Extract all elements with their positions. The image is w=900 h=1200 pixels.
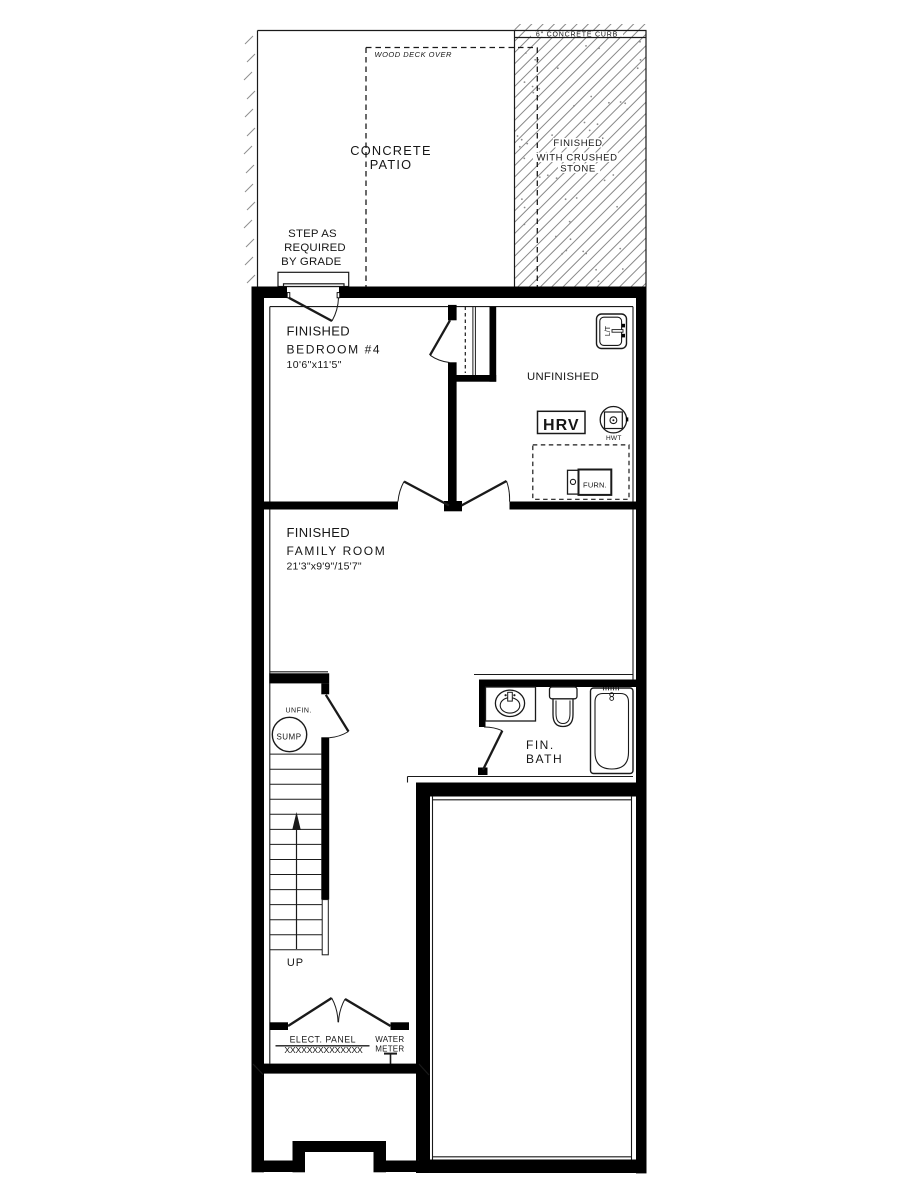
svg-text:STEP AS: STEP AS [288,228,337,240]
svg-text:REQUIRED: REQUIRED [284,242,346,254]
svg-text:FAMILY ROOM: FAMILY ROOM [287,544,387,558]
svg-text:PATIO: PATIO [370,157,413,172]
svg-text:SUMP: SUMP [276,732,301,741]
svg-text:FINISHED: FINISHED [287,525,350,540]
svg-text:BY GRADE: BY GRADE [281,256,341,268]
svg-text:UNFIN.: UNFIN. [286,708,312,715]
svg-text:FURN.: FURN. [583,481,607,490]
svg-text:UP: UP [287,957,304,969]
svg-text:FINISHED: FINISHED [553,138,602,149]
svg-text:WITH CRUSHED: WITH CRUSHED [536,153,617,164]
svg-text:UNFINISHED: UNFINISHED [527,371,599,383]
svg-text:L/T: L/T [605,325,612,336]
svg-text:METER: METER [375,1045,404,1054]
svg-text:CONCRETE: CONCRETE [350,143,431,158]
svg-text:HWT: HWT [606,435,622,442]
svg-text:FINISHED: FINISHED [287,324,350,339]
svg-text:WATER: WATER [375,1035,404,1044]
svg-text:10'6"x11'5": 10'6"x11'5" [287,359,342,371]
svg-text:STONE: STONE [560,163,596,174]
svg-text:FIN.: FIN. [526,738,555,752]
svg-text:WOOD DECK OVER: WOOD DECK OVER [375,50,453,59]
svg-text:XXXXXXXXXXXXXX: XXXXXXXXXXXXXX [284,1045,363,1055]
svg-text:BEDROOM #4: BEDROOM #4 [287,343,382,357]
svg-text:HRV: HRV [543,417,580,434]
svg-text:BATH: BATH [526,752,563,766]
svg-text:21'3"x9'9"/15'7": 21'3"x9'9"/15'7" [287,561,362,573]
svg-text:6" CONCRETE CURB: 6" CONCRETE CURB [536,32,618,39]
svg-text:ELECT. PANEL: ELECT. PANEL [290,1035,356,1045]
